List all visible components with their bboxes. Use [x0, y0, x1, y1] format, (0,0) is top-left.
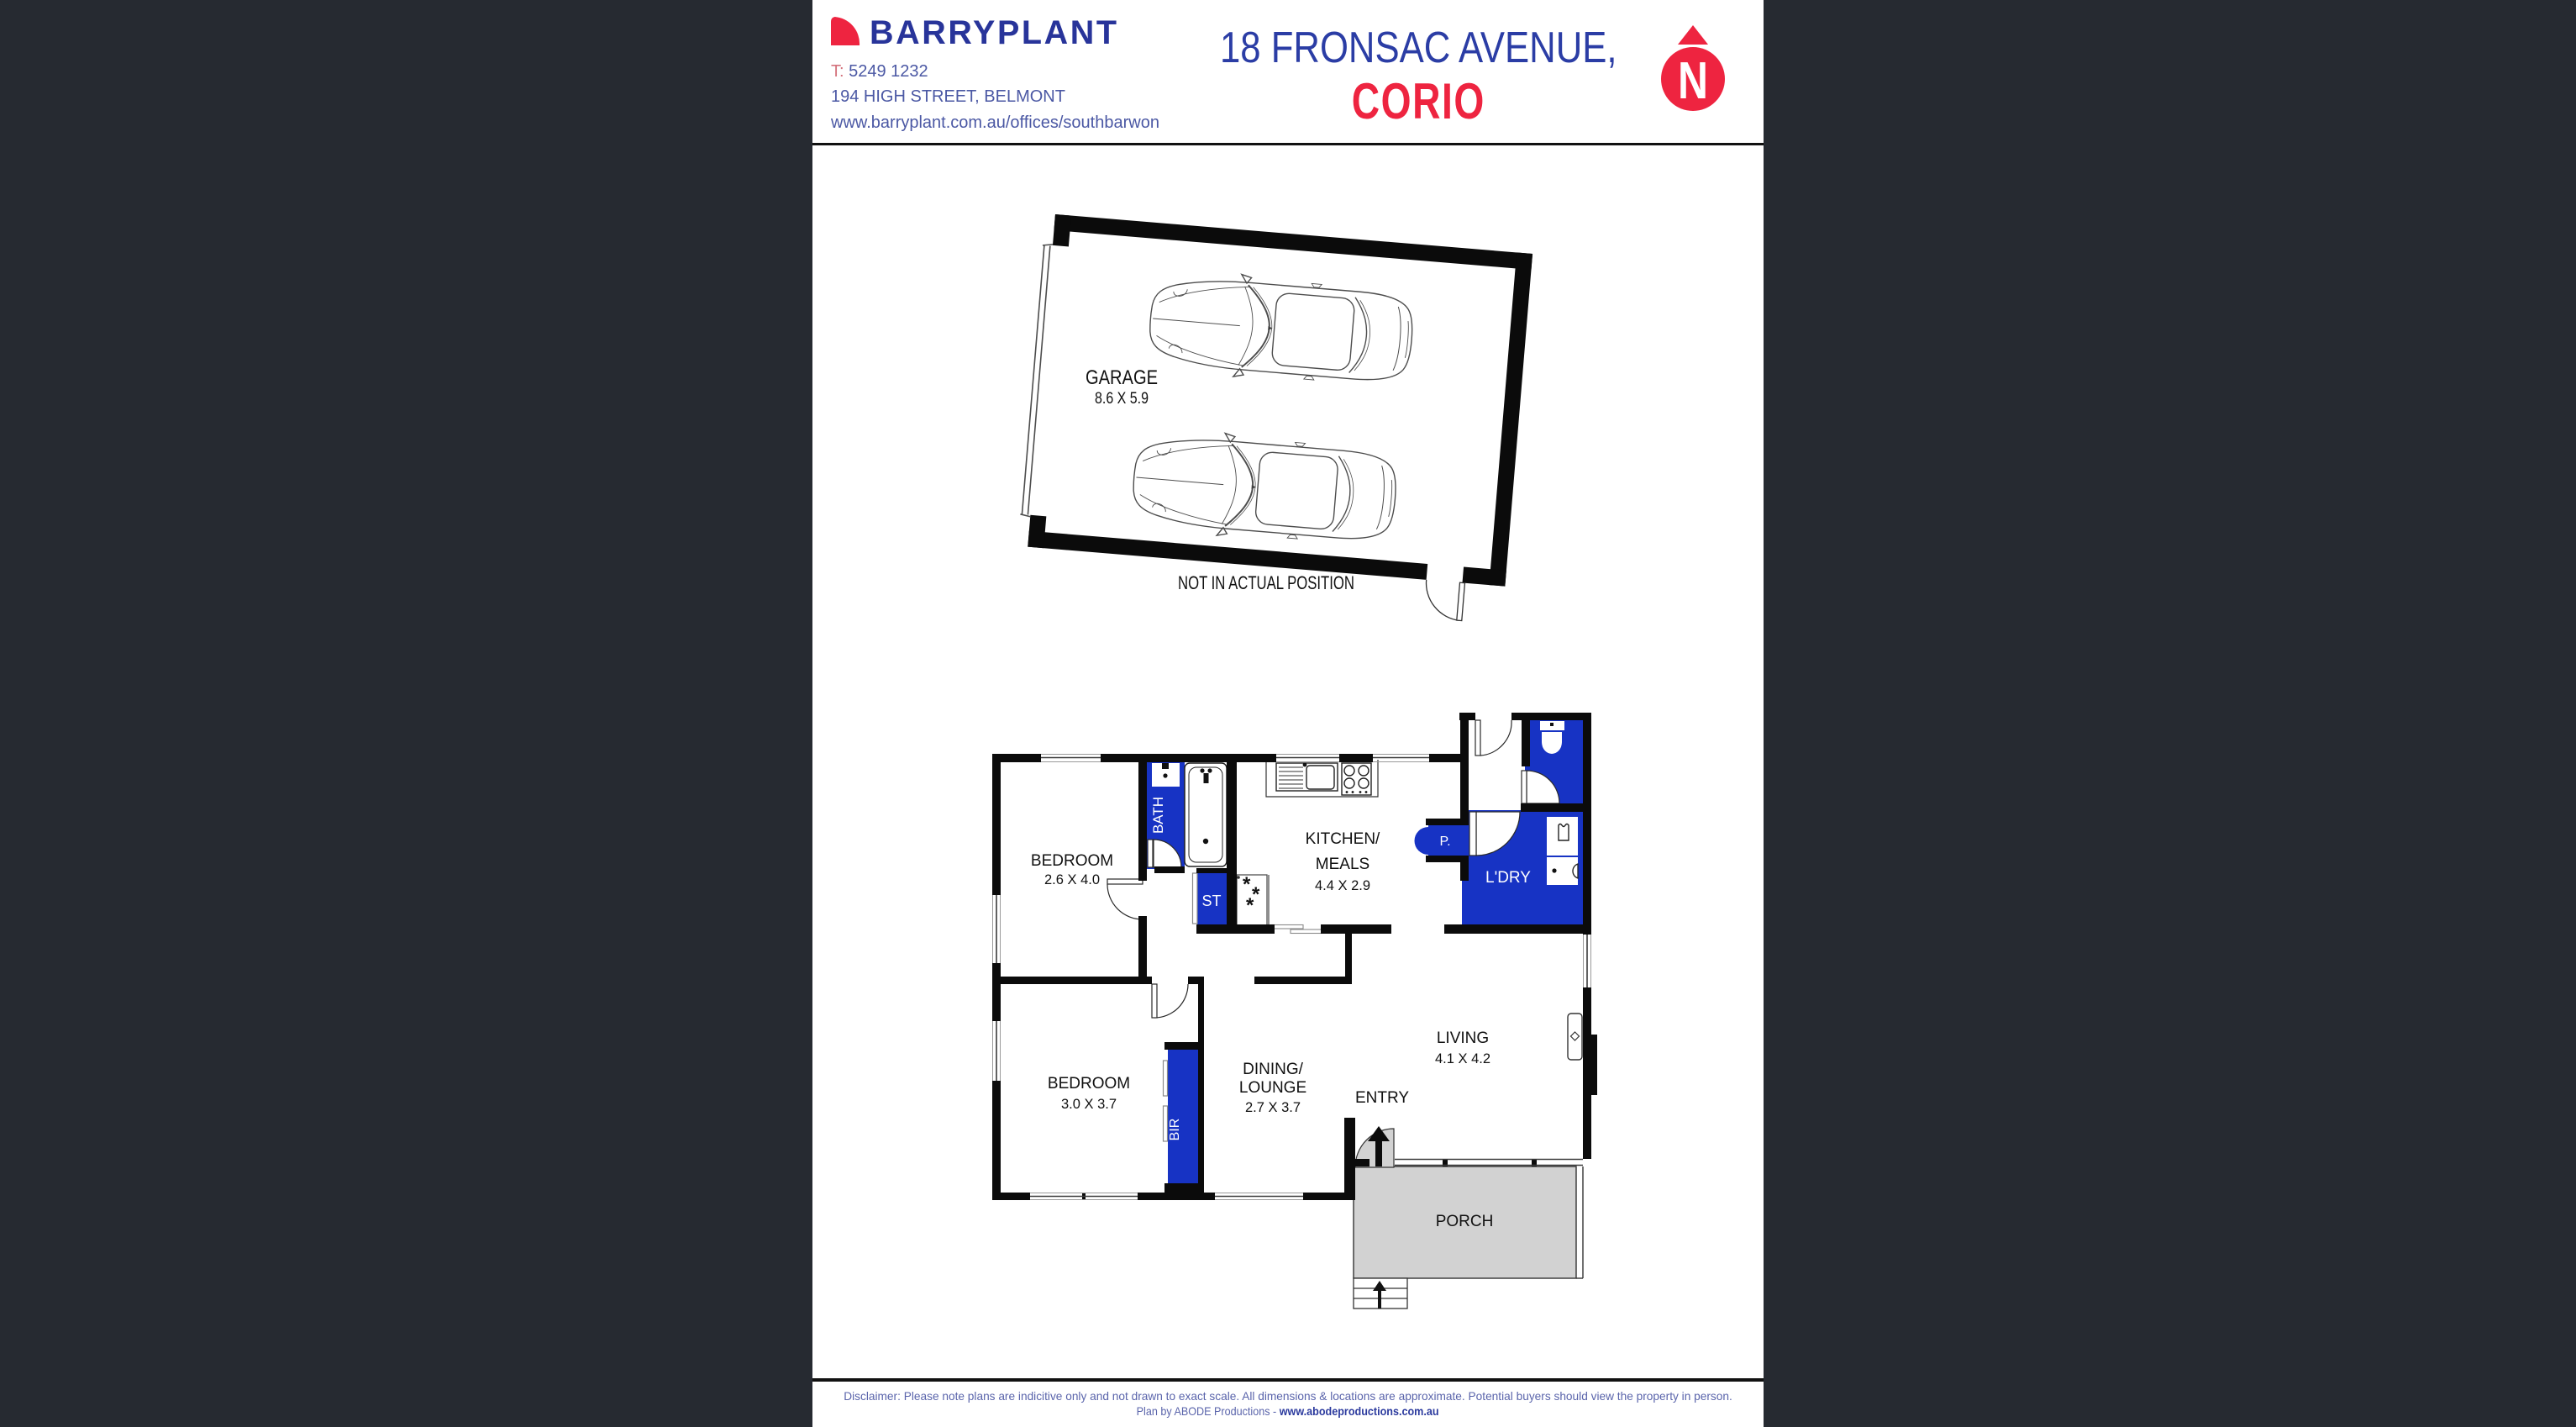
- svg-text:LOUNGE: LOUNGE: [1239, 1079, 1306, 1097]
- svg-text:2.6 X 4.0: 2.6 X 4.0: [1044, 872, 1100, 887]
- svg-text:4.1 X 4.2: 4.1 X 4.2: [1435, 1051, 1490, 1066]
- svg-text:DINING/: DINING/: [1243, 1061, 1304, 1078]
- svg-text:*: *: [1246, 894, 1254, 917]
- svg-text:P.: P.: [1439, 835, 1450, 849]
- svg-text:8.6 X 5.9: 8.6 X 5.9: [1095, 389, 1149, 408]
- svg-text:3.0 X 3.7: 3.0 X 3.7: [1061, 1097, 1117, 1112]
- svg-text:2.7 X 3.7: 2.7 X 3.7: [1245, 1100, 1301, 1115]
- svg-text:NOT IN ACTUAL POSITION: NOT IN ACTUAL POSITION: [1178, 572, 1354, 593]
- svg-text:ST: ST: [1201, 893, 1221, 909]
- svg-text:ENTRY: ENTRY: [1355, 1089, 1409, 1107]
- svg-text:PORCH: PORCH: [1436, 1213, 1494, 1230]
- svg-text:MEALS: MEALS: [1316, 856, 1369, 873]
- svg-text:BEDROOM: BEDROOM: [1031, 852, 1113, 870]
- svg-text:KITCHEN/: KITCHEN/: [1306, 830, 1380, 848]
- svg-text:BIR: BIR: [1168, 1119, 1182, 1141]
- svg-text:LIVING: LIVING: [1437, 1029, 1489, 1047]
- svg-text:BATH: BATH: [1150, 797, 1166, 834]
- svg-text:BEDROOM: BEDROOM: [1048, 1075, 1130, 1093]
- svg-text:*: *: [1243, 873, 1251, 896]
- svg-text:4.4 X 2.9: 4.4 X 2.9: [1315, 878, 1370, 893]
- svg-text:GARAGE: GARAGE: [1086, 366, 1158, 389]
- svg-text:L'DRY: L'DRY: [1485, 869, 1531, 887]
